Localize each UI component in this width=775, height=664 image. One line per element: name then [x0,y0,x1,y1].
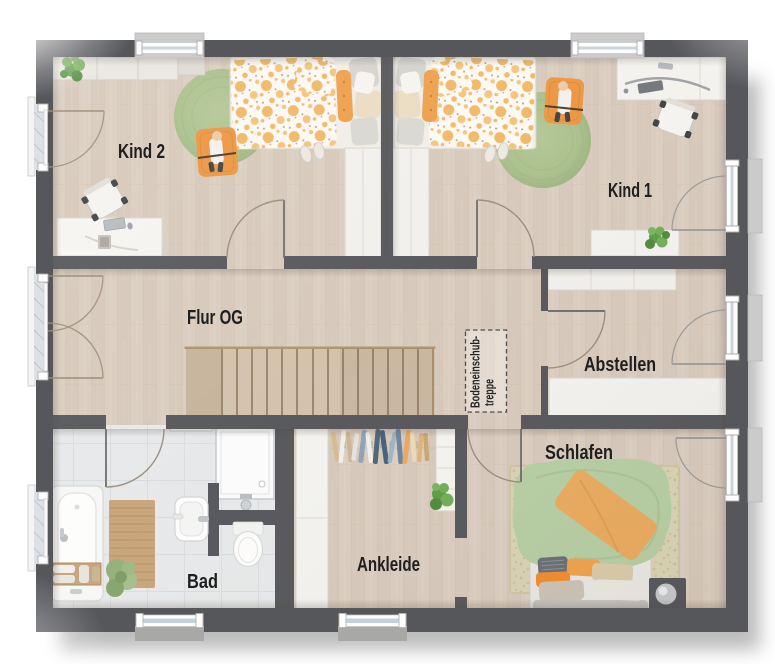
svg-text:Kind 1: Kind 1 [608,180,652,202]
svg-text:Abstellen: Abstellen [584,354,656,376]
svg-text:treppe: treppe [483,379,497,406]
svg-text:Schlafen: Schlafen [545,442,613,464]
svg-text:Flur OG: Flur OG [187,307,243,329]
svg-text:Bodeneinschub-: Bodeneinschub- [469,336,483,408]
svg-text:Ankleide: Ankleide [357,554,420,576]
svg-text:Bad: Bad [187,571,218,593]
svg-text:Kind 2: Kind 2 [118,141,165,163]
